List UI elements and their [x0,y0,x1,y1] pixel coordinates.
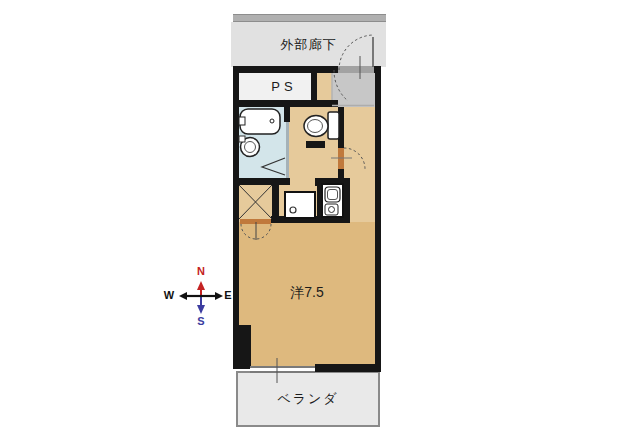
compass-w-label: W [159,289,179,301]
main-room-label: 洋7.5 [239,284,375,302]
compass-south-arrow [197,305,205,314]
compass-west-arrow [179,292,187,300]
washing-machine-pan [285,192,315,218]
fixtures-layer [0,0,637,432]
stove [325,204,338,215]
folding-door [262,158,285,175]
compass-north-arrow [197,281,205,290]
bathtub-faucet [239,117,245,125]
closet-door-swing-left [241,224,256,239]
compass-s-label: S [191,315,211,327]
washer-drain [290,207,296,213]
floor-plan: 外部廊下 ベランダ [0,0,637,432]
washbasin-tap [239,136,245,142]
ps-room-label-box: PS [239,73,311,100]
closet-door-swing-right [256,224,271,239]
toilet-tank [328,112,339,139]
compass [179,281,223,314]
entrance-door-swing-outer [339,35,374,70]
entrance-door-swing-inner [334,70,348,101]
ps-label: PS [271,79,296,94]
compass-e-label: E [218,289,238,301]
compass-n-label: N [191,265,211,277]
